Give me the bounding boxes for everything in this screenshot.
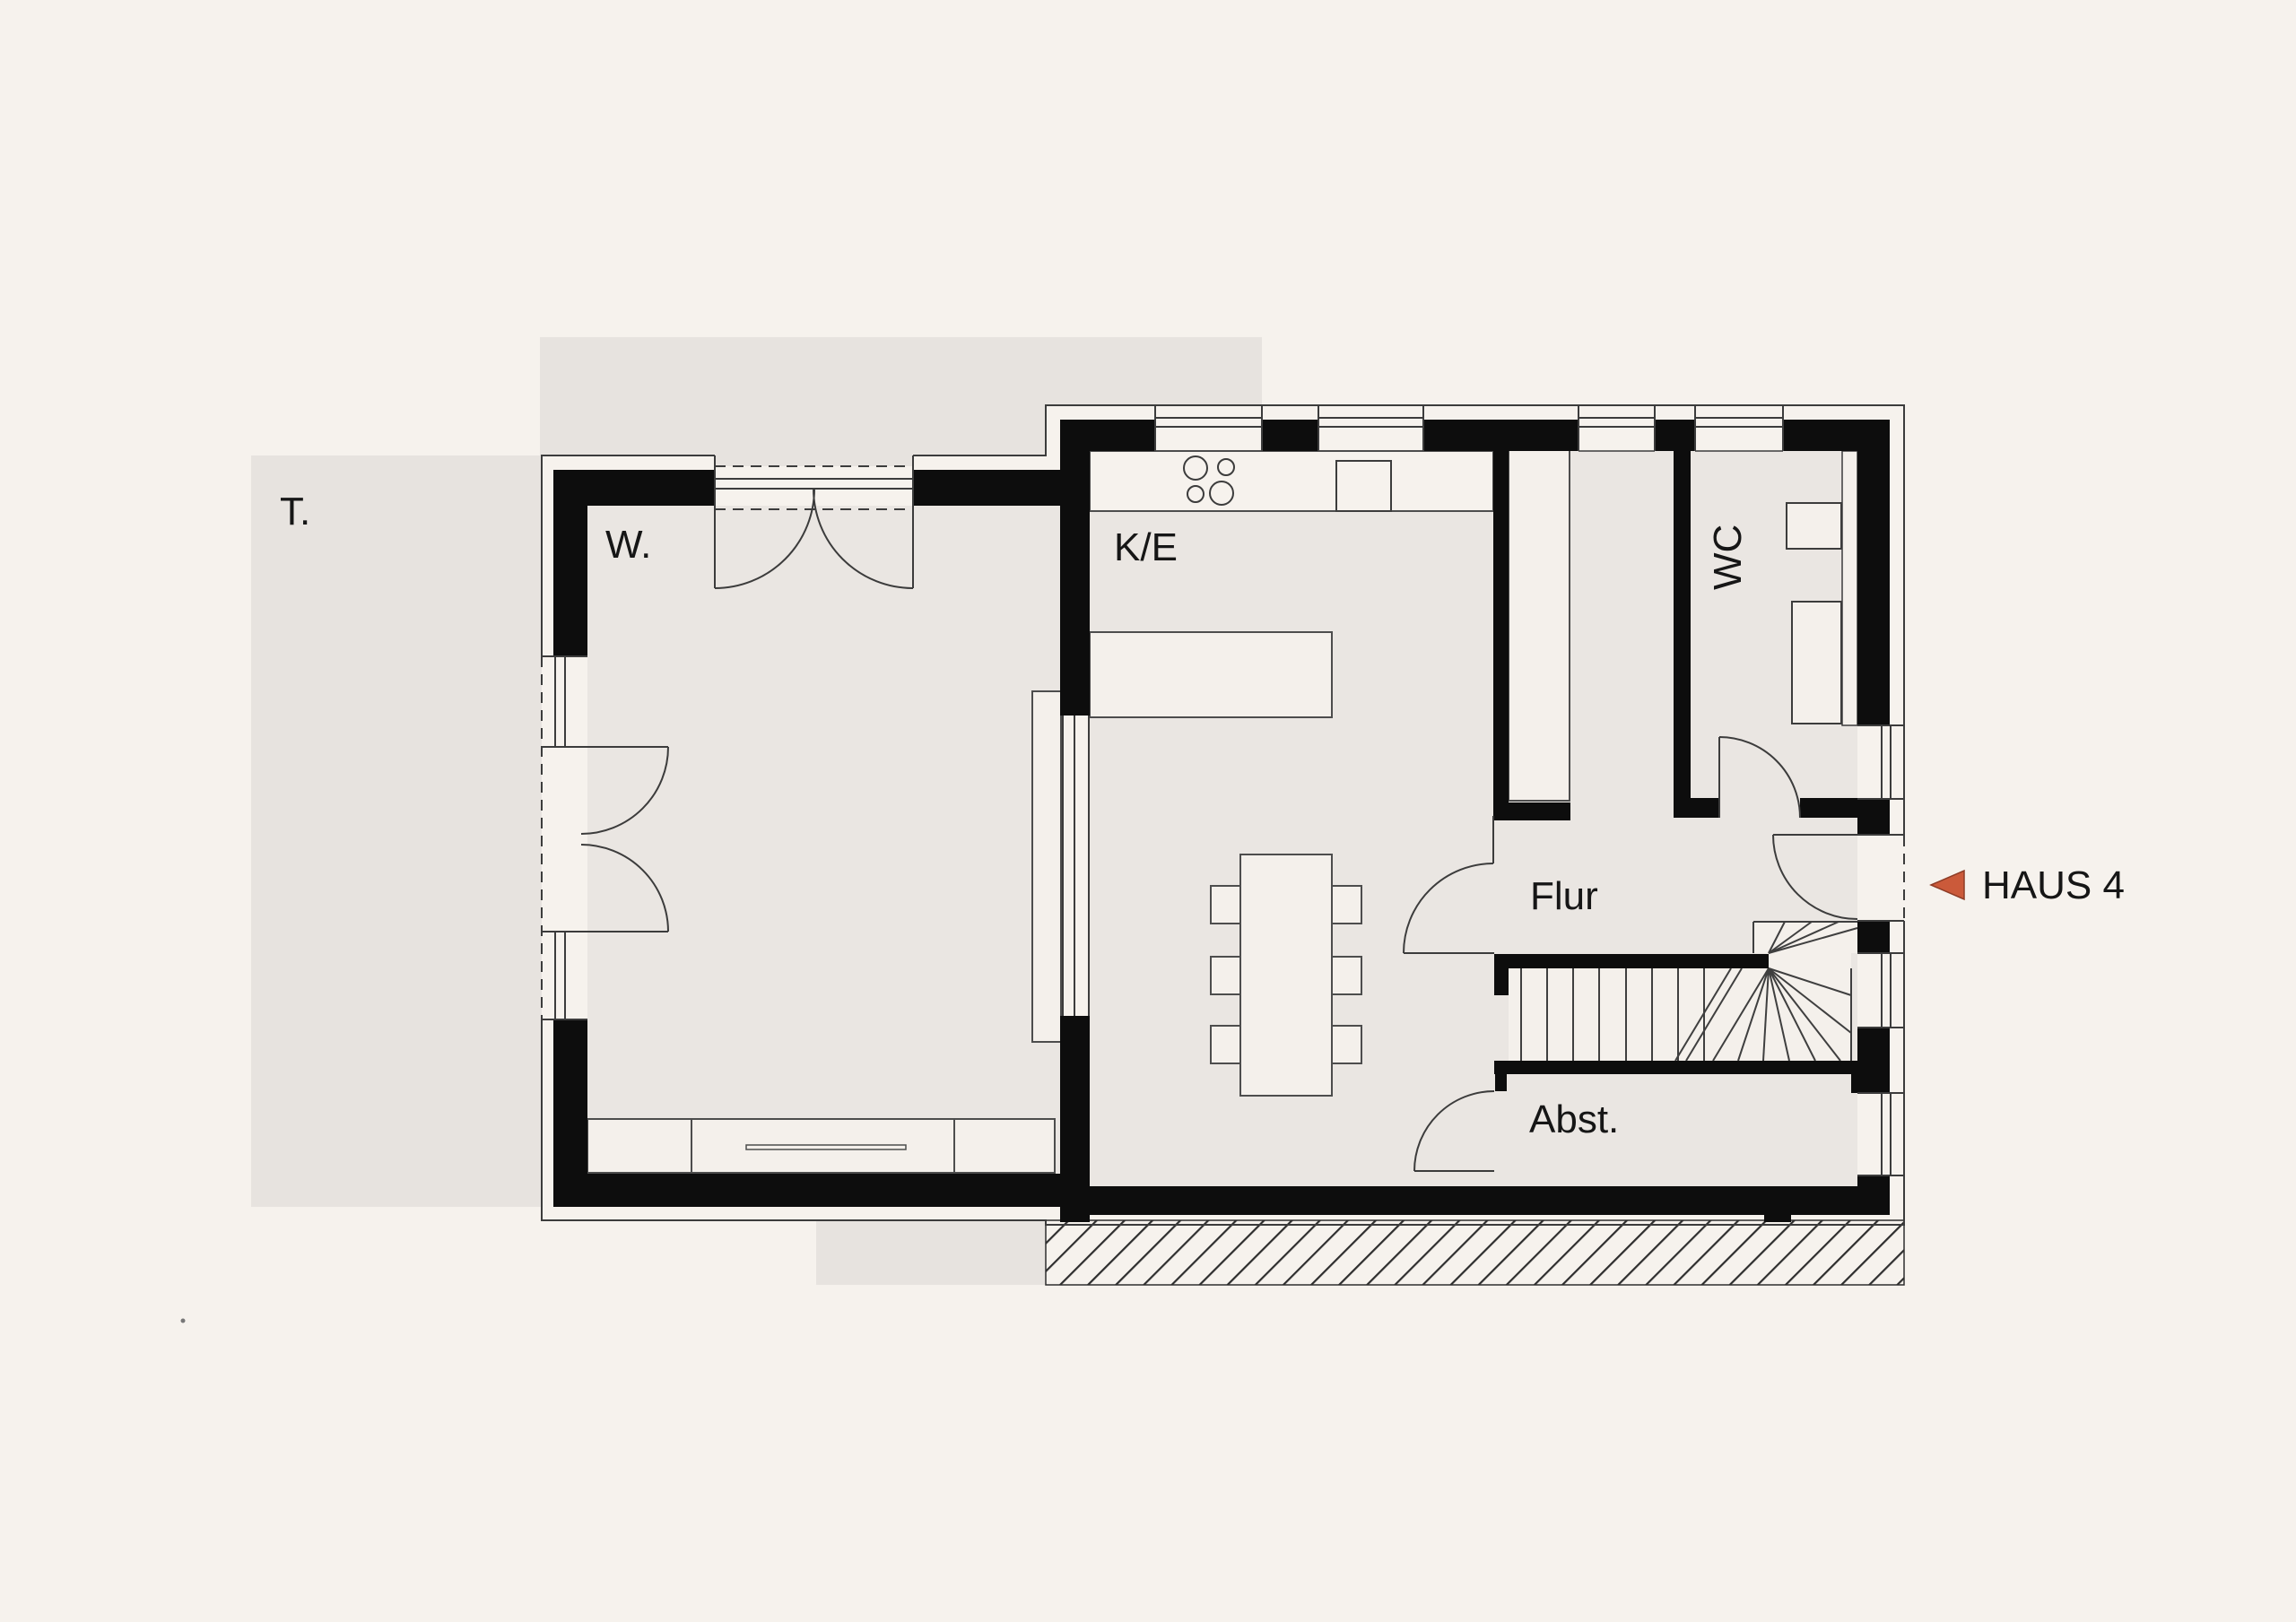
- svg-text:Flur: Flur: [1530, 874, 1598, 918]
- svg-text:W.: W.: [605, 523, 651, 567]
- svg-text:T.: T.: [280, 490, 310, 533]
- svg-text:K/E: K/E: [1114, 525, 1178, 569]
- svg-text:Abst.: Abst.: [1529, 1097, 1619, 1141]
- svg-text:HAUS 4: HAUS 4: [1982, 863, 2125, 907]
- svg-text:WC: WC: [1706, 525, 1750, 590]
